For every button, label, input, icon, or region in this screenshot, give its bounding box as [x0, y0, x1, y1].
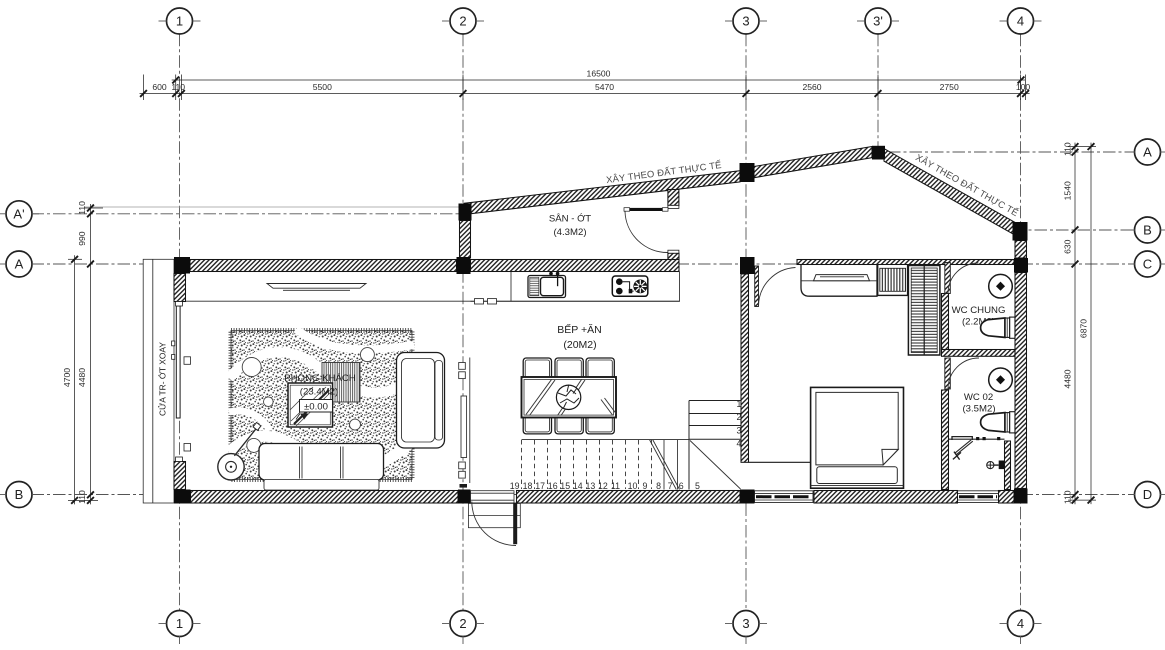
svg-text:7: 7 — [668, 481, 673, 491]
svg-text:(4.3M2): (4.3M2) — [553, 227, 586, 238]
svg-text:2560: 2560 — [802, 82, 821, 92]
svg-text:5: 5 — [695, 481, 700, 491]
svg-text:19: 19 — [510, 481, 520, 491]
svg-text:±0.00: ±0.00 — [304, 401, 328, 412]
svg-text:SÂN - ỚT: SÂN - ỚT — [549, 214, 591, 225]
svg-text:600: 600 — [152, 82, 167, 92]
svg-text:4: 4 — [1017, 14, 1024, 29]
svg-text:2750: 2750 — [940, 82, 959, 92]
svg-text:8: 8 — [656, 481, 661, 491]
svg-text:110: 110 — [1063, 490, 1073, 504]
svg-text:(3.5M2): (3.5M2) — [962, 404, 995, 415]
svg-text:BẾP +ĂN: BẾP +ĂN — [557, 323, 601, 336]
svg-text:CỬA TR- ỚT XOAY: CỬA TR- ỚT XOAY — [157, 342, 168, 416]
svg-text:110: 110 — [1063, 142, 1073, 156]
svg-text:4: 4 — [1017, 616, 1024, 631]
svg-text:5470: 5470 — [595, 82, 614, 92]
svg-text:6: 6 — [679, 481, 684, 491]
svg-text:13: 13 — [586, 481, 596, 491]
svg-text:110: 110 — [77, 490, 87, 504]
svg-text:1: 1 — [176, 616, 183, 631]
svg-text:15: 15 — [560, 481, 570, 491]
svg-text:2: 2 — [459, 616, 466, 631]
svg-text:16: 16 — [548, 481, 558, 491]
svg-text:4700: 4700 — [62, 368, 72, 387]
svg-text:6870: 6870 — [1079, 319, 1089, 338]
svg-text:110: 110 — [77, 201, 87, 215]
svg-text:1540: 1540 — [1063, 181, 1073, 200]
svg-text:11: 11 — [611, 481, 620, 491]
svg-text:PHÒNG KHÁCH: PHÒNG KHÁCH — [284, 373, 356, 384]
svg-text:630: 630 — [1063, 239, 1073, 254]
svg-text:5500: 5500 — [313, 82, 332, 92]
svg-text:990: 990 — [77, 231, 87, 246]
svg-text:3': 3' — [873, 14, 883, 29]
svg-text:B: B — [15, 487, 24, 502]
svg-text:C: C — [1143, 257, 1152, 272]
svg-text:3: 3 — [742, 616, 749, 631]
svg-text:D: D — [1143, 487, 1152, 502]
svg-text:WC 02: WC 02 — [964, 392, 993, 403]
svg-text:14: 14 — [573, 481, 583, 491]
svg-text:1: 1 — [176, 14, 183, 29]
svg-text:9: 9 — [643, 481, 648, 491]
svg-text:(20M2): (20M2) — [563, 339, 596, 351]
svg-text:2: 2 — [459, 14, 466, 29]
svg-text:4480: 4480 — [77, 368, 87, 387]
svg-text:(23.4M2): (23.4M2) — [300, 387, 338, 398]
svg-text:110: 110 — [171, 82, 185, 92]
svg-text:B: B — [1143, 223, 1152, 238]
svg-text:4480: 4480 — [1063, 369, 1073, 388]
svg-text:A': A' — [13, 206, 24, 221]
svg-text:WC CHUNG: WC CHUNG — [952, 305, 1006, 316]
svg-text:3: 3 — [742, 14, 749, 29]
svg-text:A: A — [15, 257, 24, 272]
svg-text:16500: 16500 — [587, 68, 611, 78]
svg-text:17: 17 — [535, 481, 545, 491]
svg-text:A: A — [1143, 145, 1152, 160]
svg-text:100: 100 — [1016, 82, 1031, 92]
svg-text:12: 12 — [598, 481, 608, 491]
svg-text:10: 10 — [628, 481, 638, 491]
svg-text:18: 18 — [523, 481, 533, 491]
